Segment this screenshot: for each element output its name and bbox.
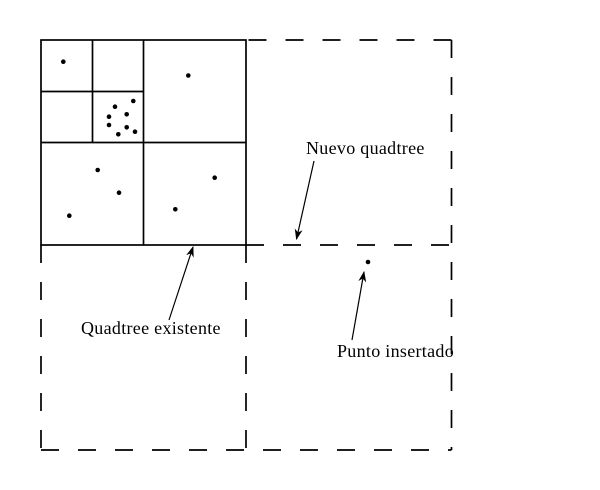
quadtree-point: [133, 129, 138, 134]
punto-insertado-label: Punto insertado: [337, 342, 454, 362]
quadtree-point: [124, 125, 129, 130]
diagram-svg: [0, 0, 600, 490]
quadtree-point: [116, 132, 121, 137]
quadtree-point: [113, 104, 118, 109]
quadtree-diagram: Nuevo quadtree Quadtree existente Punto …: [0, 0, 600, 490]
nuevo-quadtree-label: Nuevo quadtree: [306, 139, 425, 159]
quadtree-point: [117, 190, 122, 195]
nuevo-quadtree-arrow: [297, 161, 315, 239]
quadtree-point: [124, 112, 129, 117]
punto-insertado-arrow: [352, 272, 364, 340]
quadtree-existente-label: Quadtree existente: [81, 319, 221, 339]
quadtree-point: [95, 168, 100, 173]
annotation-arrows: [169, 161, 364, 340]
existing-quadtree: [41, 40, 246, 245]
quadtree-point: [107, 114, 112, 119]
quadtree-point: [107, 123, 112, 128]
quadtree-point: [173, 207, 178, 212]
quadtree-existente-arrow: [169, 247, 193, 320]
quadtree-point: [186, 73, 191, 78]
existing-quadtree-points: [61, 59, 217, 218]
inserted-point-group: [366, 260, 371, 265]
quadtree-point: [61, 59, 66, 64]
inserted-point: [366, 260, 371, 265]
quadtree-point: [67, 213, 72, 218]
quadtree-point: [212, 175, 217, 180]
quadtree-point: [131, 99, 136, 104]
